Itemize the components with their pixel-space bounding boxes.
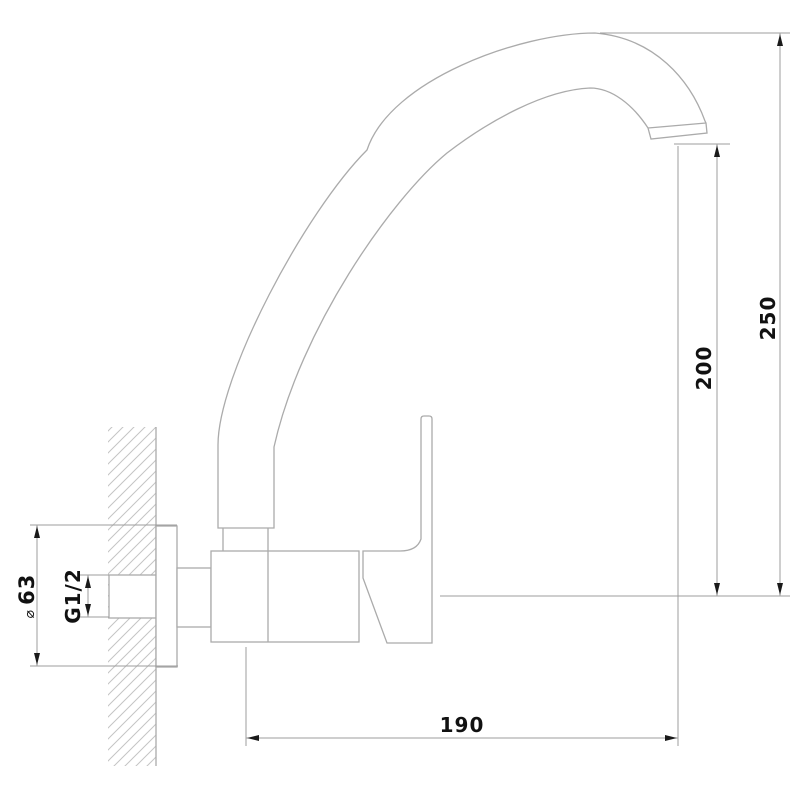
label-inlet-thread: G1/2	[61, 568, 85, 624]
flange-diameter-value: 63	[15, 574, 39, 605]
label-overall-height: 250	[756, 296, 780, 341]
inlet-pipe-in-wall	[109, 575, 156, 618]
spout	[218, 33, 707, 528]
technical-drawing-canvas: 250 200 190 ⌀63 G1/2	[0, 0, 800, 800]
arrow-right-190	[665, 735, 677, 741]
arrow-left-190	[247, 735, 259, 741]
arrow-up-g12	[85, 576, 91, 588]
arrow-down-200	[714, 583, 720, 595]
faucet-outline-group	[109, 33, 707, 667]
arrow-down-63	[34, 653, 40, 665]
arrow-up-200	[714, 145, 720, 157]
diameter-symbol: ⌀	[22, 609, 38, 618]
arrow-up-63	[34, 526, 40, 538]
label-spout-reach: 190	[440, 713, 485, 737]
arrow-down-g12	[85, 604, 91, 616]
arrow-up-250	[777, 34, 783, 46]
connector-pipe	[177, 568, 211, 627]
label-flange-diameter: ⌀63	[15, 574, 39, 619]
arrow-down-250	[777, 583, 783, 595]
wall-flange	[156, 526, 177, 667]
faucet-dimension-drawing: 250 200 190 ⌀63 G1/2	[0, 0, 800, 800]
label-outlet-height: 200	[692, 346, 716, 391]
faucet-body	[211, 551, 359, 642]
handle-lever	[363, 416, 432, 643]
